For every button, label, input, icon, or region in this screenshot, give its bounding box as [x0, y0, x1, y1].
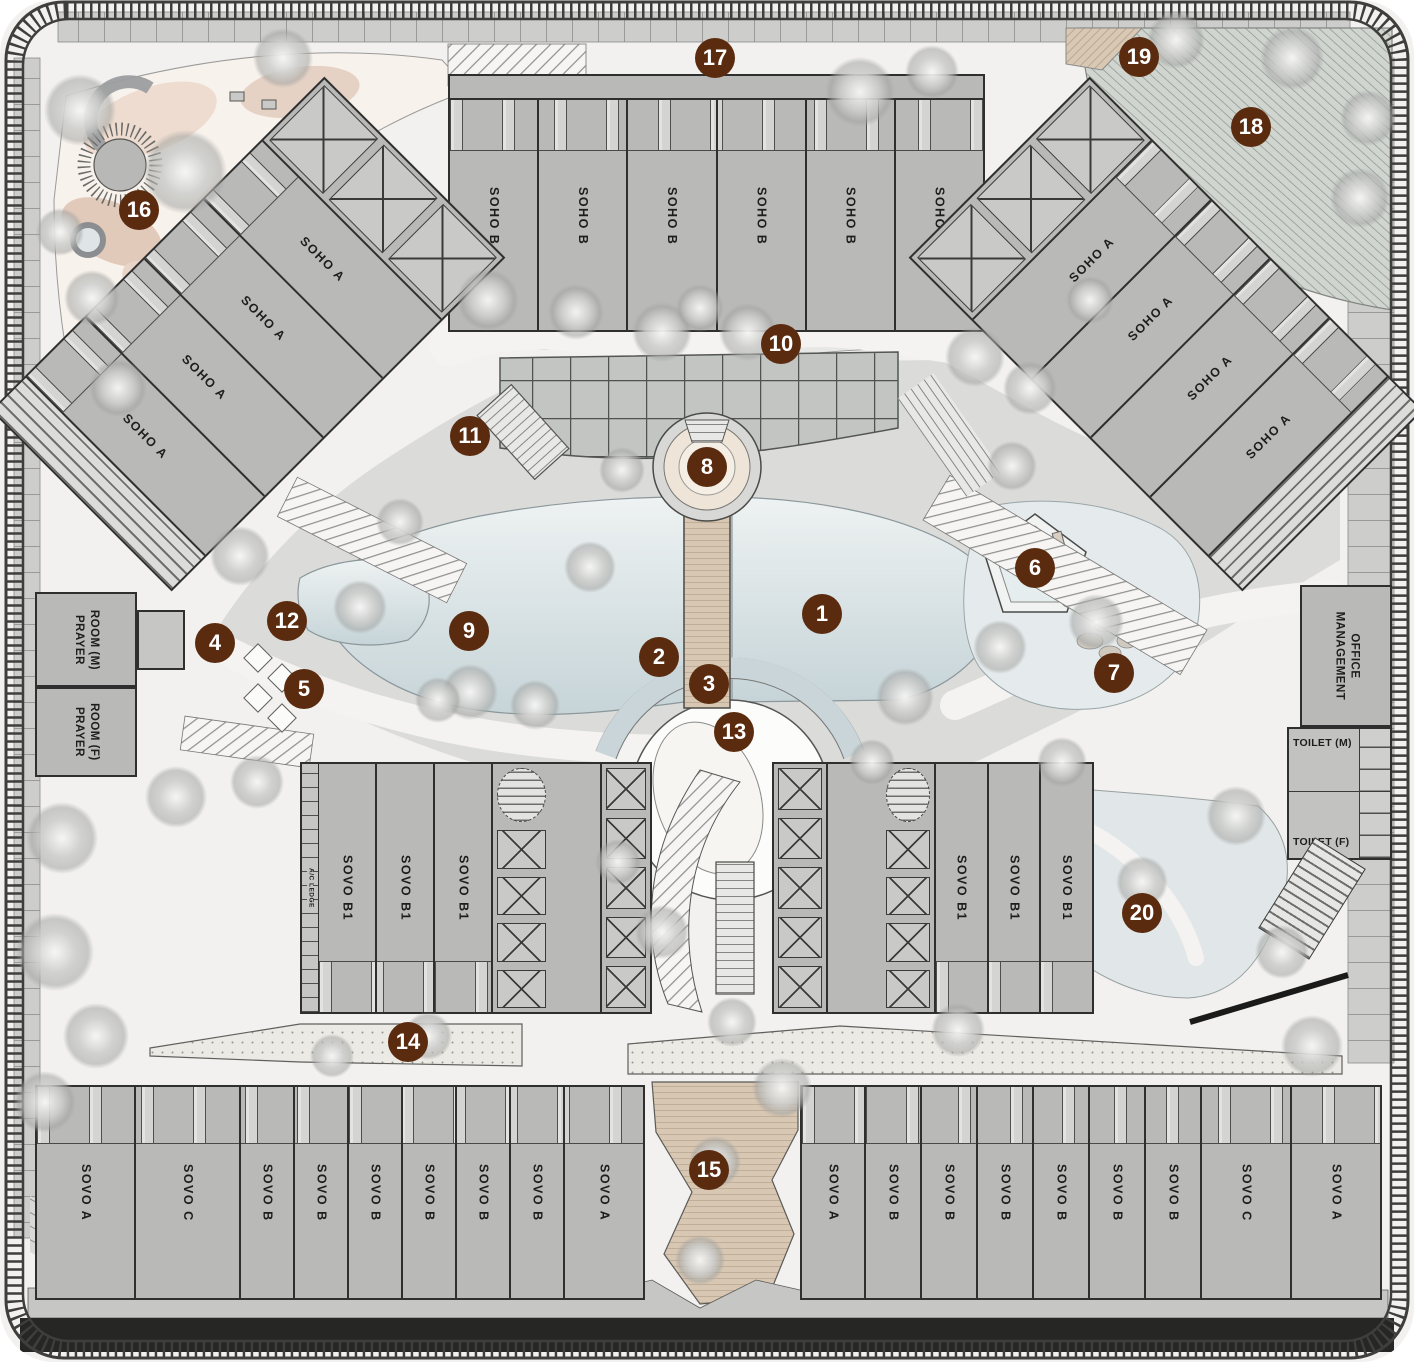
marker-8[interactable]: 8 — [687, 447, 727, 487]
lift-shaft — [606, 917, 646, 959]
unit-label: SOVO B — [1111, 1164, 1124, 1222]
unit-label: SOVO B1 — [1008, 855, 1021, 921]
unit-label: SOVO C — [181, 1164, 194, 1222]
unit-label: SOVO B1 — [341, 855, 354, 921]
room-label: OFFICE — [1346, 612, 1361, 701]
lift-shaft — [606, 867, 646, 909]
lift-shaft — [497, 830, 546, 869]
unit-label: SOHO A — [1244, 412, 1294, 462]
ac-ledge: A/C LEDGE — [302, 764, 319, 1012]
unit-label: SOHO A — [1185, 353, 1235, 403]
unit-label: SOVO B — [261, 1164, 274, 1222]
unit-sovo-b: SOVO B — [864, 1087, 920, 1298]
marker-4[interactable]: 4 — [195, 623, 235, 663]
stair-core — [886, 768, 930, 822]
unit-sovo-b: SOVO B — [1088, 1087, 1144, 1298]
unit-label: SOHO A — [238, 294, 288, 344]
block-sovo-b1-east: SOVO B1 SOVO B1 SOVO B1 — [772, 762, 1094, 1014]
unit-label: SOVO B — [423, 1164, 436, 1222]
lift-core — [600, 764, 650, 1012]
unit-label: SOVO B — [315, 1164, 328, 1222]
unit-label: SOVO C — [1240, 1164, 1253, 1222]
block-sovo-row-west: SOVO A SOVO C SOVO B SOVO B SOVO B SOVO … — [35, 1085, 645, 1300]
lift-shaft — [778, 966, 822, 1008]
lift-shaft — [606, 818, 646, 860]
room-label: ROOM (M) — [86, 609, 101, 669]
unit-label: SOHO B — [844, 187, 857, 245]
unit-sovo-b: SOVO B — [976, 1087, 1032, 1298]
lift-shaft — [497, 877, 546, 916]
unit-label: SOHO A — [120, 412, 170, 462]
unit-sovo-c: SOVO C — [1200, 1087, 1290, 1298]
lift-shaft — [778, 818, 822, 860]
unit-label: SOHO B — [487, 187, 500, 245]
unit-soho-b: SOHO B — [626, 100, 715, 332]
block-soho-b: SOHO B SOHO B SOHO B SOHO B SOHO B SOHO … — [448, 74, 985, 332]
unit-label: SOVO A — [1330, 1164, 1343, 1221]
unit-label: SOHO A — [1067, 235, 1117, 285]
unit-sovo-b1: SOVO B1 — [987, 764, 1040, 1012]
unit-sovo-b: SOVO B — [920, 1087, 976, 1298]
unit-sovo-b1: SOVO B1 — [936, 764, 987, 1012]
marker-13[interactable]: 13 — [714, 712, 754, 752]
unit-sovo-b: SOVO B — [1144, 1087, 1200, 1298]
stair-core — [497, 768, 546, 822]
unit-label: SOHO B — [666, 187, 679, 245]
unit-label: SOVO B — [943, 1164, 956, 1222]
marker-5[interactable]: 5 — [284, 669, 324, 709]
room-label: TOILET (M) — [1293, 737, 1352, 749]
unit-label: SOHO A — [298, 235, 348, 285]
lift-shaft — [778, 867, 822, 909]
lift-shaft — [886, 970, 930, 1009]
room-label: MANAGEMENT — [1331, 612, 1346, 701]
lift-lobby — [550, 764, 600, 1012]
unit-label: SOVO B1 — [399, 855, 412, 921]
marker-17[interactable]: 17 — [695, 38, 735, 78]
unit-sovo-b1: SOVO B1 — [375, 764, 433, 1012]
unit-sovo-b: SOVO B — [1032, 1087, 1088, 1298]
lift-core — [882, 764, 936, 1012]
lift-shaft — [886, 923, 930, 962]
marker-9[interactable]: 9 — [449, 611, 489, 651]
unit-label: SOVO B — [1055, 1164, 1068, 1222]
marker-2[interactable]: 2 — [639, 637, 679, 677]
room-label: PRAYER — [71, 703, 86, 761]
unit-sovo-a: SOVO A — [1290, 1087, 1380, 1298]
marker-6[interactable]: 6 — [1015, 548, 1055, 588]
site-floor-plan: SOHO B SOHO B SOHO B SOHO B SOHO B SOHO … — [0, 0, 1414, 1362]
unit-label: SOVO B — [369, 1164, 382, 1222]
unit-label: SOHO A — [1126, 294, 1176, 344]
unit-soho-b: SOHO B — [537, 100, 626, 332]
toilet-block: TOILET (M) TOILET (F) — [1287, 727, 1392, 860]
ac-ledge-label: A/C LEDGE — [307, 866, 314, 910]
unit-sovo-b: SOVO B — [455, 1087, 509, 1298]
unit-label: SOVO A — [598, 1164, 611, 1221]
marker-1[interactable]: 1 — [802, 594, 842, 634]
prayer-room-m: ROOM (M)PRAYER — [35, 592, 137, 687]
unit-sovo-b: SOVO B — [347, 1087, 401, 1298]
lift-shaft — [778, 768, 822, 810]
unit-label: SOVO A — [79, 1164, 92, 1221]
marker-11[interactable]: 11 — [450, 416, 490, 456]
unit-sovo-b1: SOVO B1 — [319, 764, 375, 1012]
lift-shaft — [886, 830, 930, 869]
marker-3[interactable]: 3 — [689, 664, 729, 704]
lift-shaft — [606, 768, 646, 810]
unit-sovo-a: SOVO A — [802, 1087, 864, 1298]
unit-label: SOVO B1 — [1060, 855, 1073, 921]
marker-16[interactable]: 16 — [119, 190, 159, 230]
unit-soho-b: SOHO B — [805, 100, 894, 332]
unit-label: SOHO B — [577, 187, 590, 245]
marker-20[interactable]: 20 — [1122, 893, 1162, 933]
prayer-room-f: ROOM (F)PRAYER — [35, 687, 137, 777]
management-office: OFFICEMANAGEMENT — [1300, 585, 1392, 727]
room-label: PRAYER — [71, 609, 86, 669]
unit-label: SOVO A — [827, 1164, 840, 1221]
marker-15[interactable]: 15 — [689, 1150, 729, 1190]
marker-10[interactable]: 10 — [761, 324, 801, 364]
unit-label: SOVO B — [1167, 1164, 1180, 1222]
unit-label: SOVO B — [887, 1164, 900, 1222]
unit-sovo-b1: SOVO B1 — [1039, 764, 1092, 1012]
lift-core — [774, 764, 828, 1012]
marker-7[interactable]: 7 — [1094, 653, 1134, 693]
lift-shaft — [497, 923, 546, 962]
lift-core — [491, 764, 550, 1012]
marker-12[interactable]: 12 — [267, 601, 307, 641]
unit-sovo-b: SOVO B — [293, 1087, 347, 1298]
unit-sovo-b: SOVO B — [239, 1087, 293, 1298]
unit-soho-b: SOHO B — [716, 100, 805, 332]
unit-sovo-b: SOVO B — [401, 1087, 455, 1298]
unit-label: SOVO B — [999, 1164, 1012, 1222]
unit-label: SOHO A — [179, 353, 229, 403]
lift-lobby — [828, 764, 882, 1012]
lift-shaft — [606, 966, 646, 1008]
unit-sovo-a: SOVO A — [37, 1087, 134, 1298]
unit-label: SOVO B1 — [955, 855, 968, 921]
block-sovo-b1-west: A/C LEDGE SOVO B1 SOVO B1 SOVO B1 — [300, 762, 652, 1014]
unit-sovo-a: SOVO A — [563, 1087, 643, 1298]
marker-19[interactable]: 19 — [1119, 37, 1159, 77]
unit-label: SOVO B — [531, 1164, 544, 1222]
unit-label: SOVO B1 — [457, 855, 470, 921]
soho-b-corridor — [450, 76, 983, 100]
unit-label: SOHO B — [755, 187, 768, 245]
planters — [150, 1024, 1342, 1074]
block-sovo-row-east: SOVO A SOVO B SOVO B SOVO B SOVO B SOVO … — [800, 1085, 1382, 1300]
lift-shaft — [886, 877, 930, 916]
marker-18[interactable]: 18 — [1231, 107, 1271, 147]
lift-shaft — [497, 970, 546, 1009]
lift-shaft — [778, 917, 822, 959]
room-label: ROOM (F) — [86, 703, 101, 761]
unit-sovo-c: SOVO C — [134, 1087, 239, 1298]
unit-label: SOVO B — [477, 1164, 490, 1222]
marker-14[interactable]: 14 — [388, 1022, 428, 1062]
central-walkway — [652, 1082, 798, 1304]
unit-sovo-b1: SOVO B1 — [433, 764, 491, 1012]
unit-sovo-b: SOVO B — [509, 1087, 563, 1298]
prayer-vestibule — [137, 610, 185, 670]
toilet-stalls — [1359, 729, 1390, 858]
